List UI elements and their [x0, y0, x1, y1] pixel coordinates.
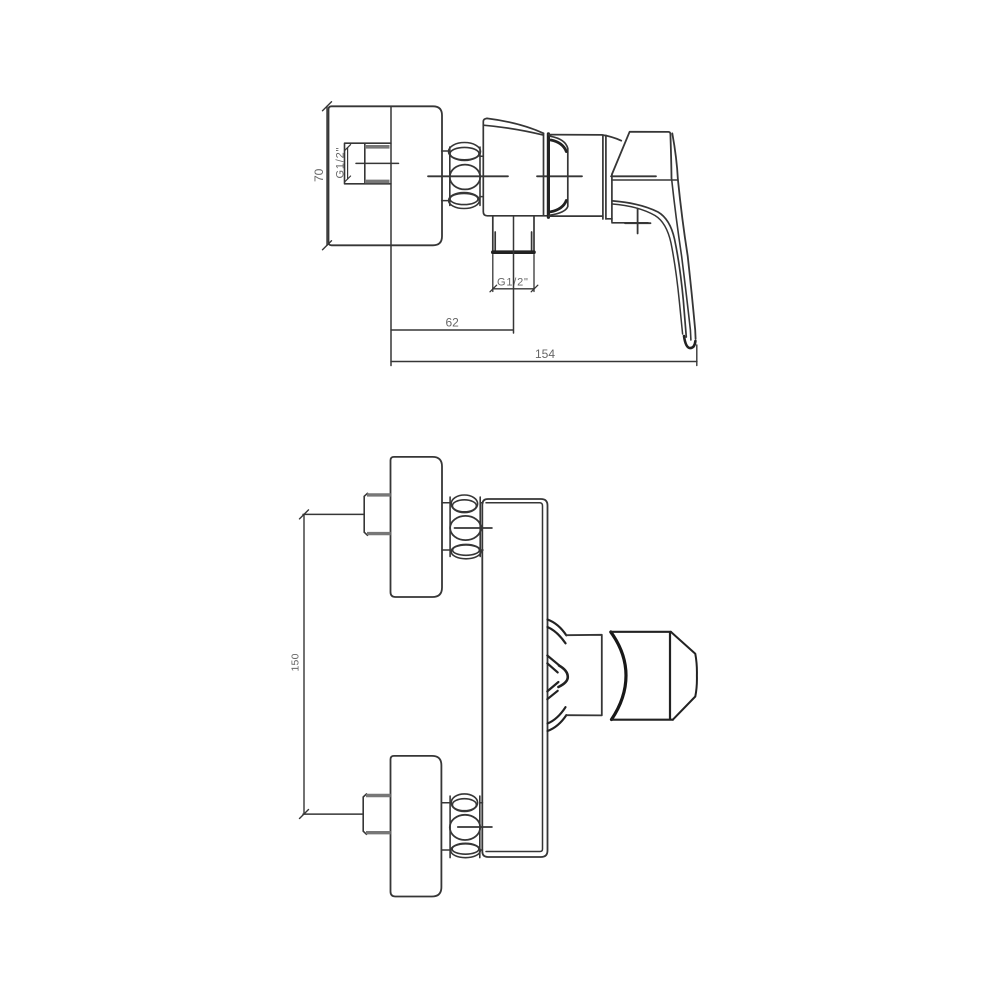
- svg-text:150: 150: [290, 653, 302, 671]
- svg-text:154: 154: [535, 347, 555, 361]
- svg-text:62: 62: [446, 316, 460, 330]
- svg-text:70: 70: [312, 168, 326, 182]
- svg-text:G1/2": G1/2": [335, 147, 347, 179]
